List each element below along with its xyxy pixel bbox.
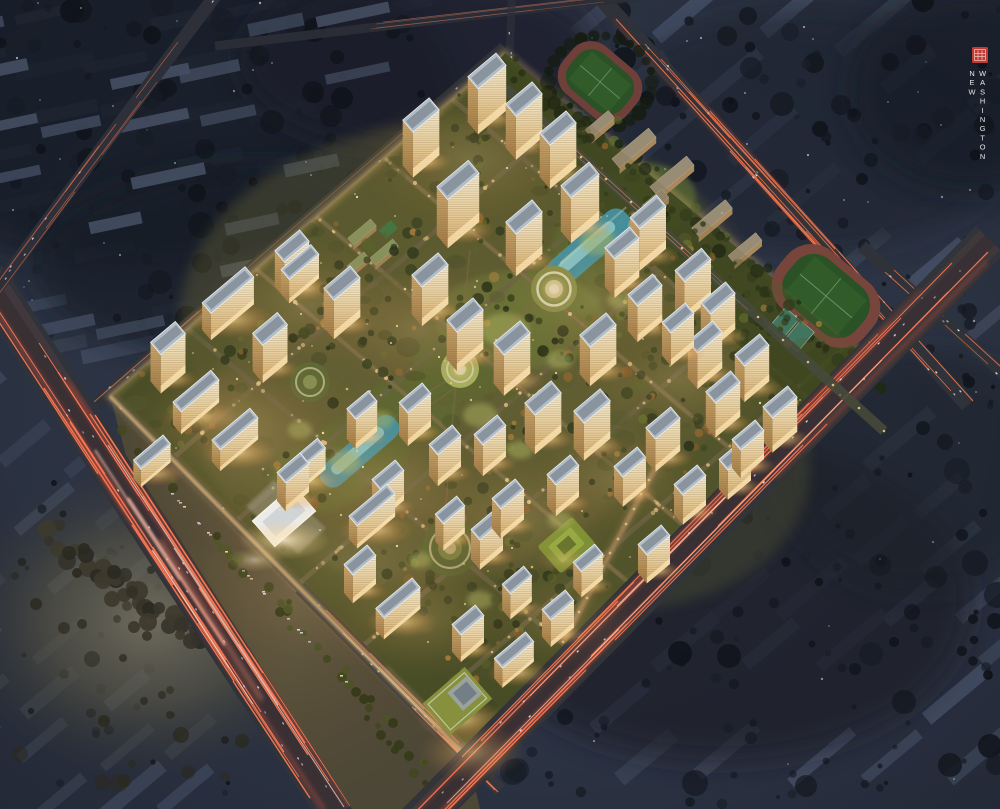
svg-text:W: W — [979, 69, 986, 78]
svg-text:G: G — [980, 124, 986, 133]
svg-text:N: N — [980, 152, 985, 161]
svg-text:N: N — [969, 69, 974, 78]
svg-text:H: H — [980, 97, 985, 106]
svg-text:N: N — [980, 115, 985, 124]
svg-text:W: W — [969, 87, 976, 96]
svg-text:O: O — [980, 143, 986, 152]
svg-text:T: T — [980, 133, 985, 142]
svg-text:E: E — [970, 78, 975, 87]
svg-text:S: S — [980, 87, 985, 96]
svg-text:A: A — [980, 78, 985, 87]
svg-text:I: I — [982, 106, 984, 115]
